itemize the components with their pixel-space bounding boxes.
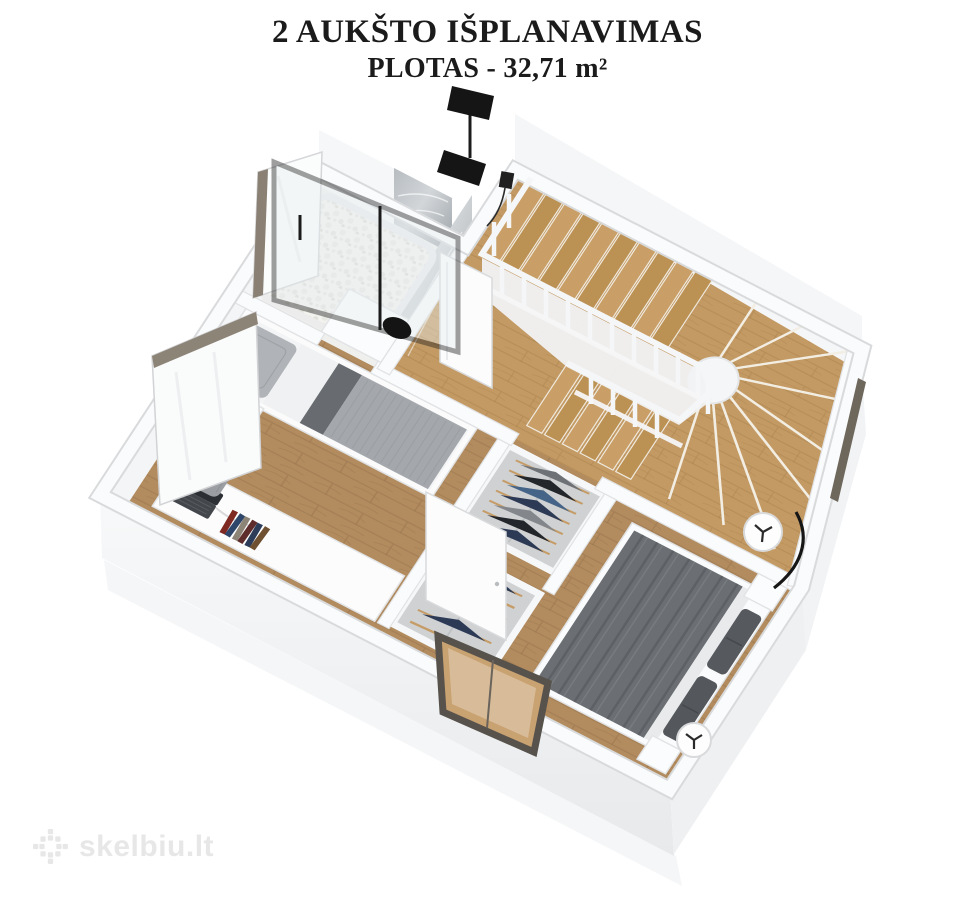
floorplan-3d-render bbox=[0, 0, 975, 900]
bedside-lamp-foot bbox=[677, 723, 711, 757]
screenshot-root: 2 AUKŠTO IŠPLANAVIMAS PLOTAS - 32,71 m² bbox=[0, 0, 975, 900]
skelbiu-logo-icon bbox=[33, 829, 69, 865]
watermark: skelbiu.lt bbox=[33, 829, 214, 865]
door-handle bbox=[495, 582, 499, 586]
bedside-lamp-head bbox=[744, 513, 782, 551]
watermark-text: skelbiu.lt bbox=[79, 830, 214, 864]
